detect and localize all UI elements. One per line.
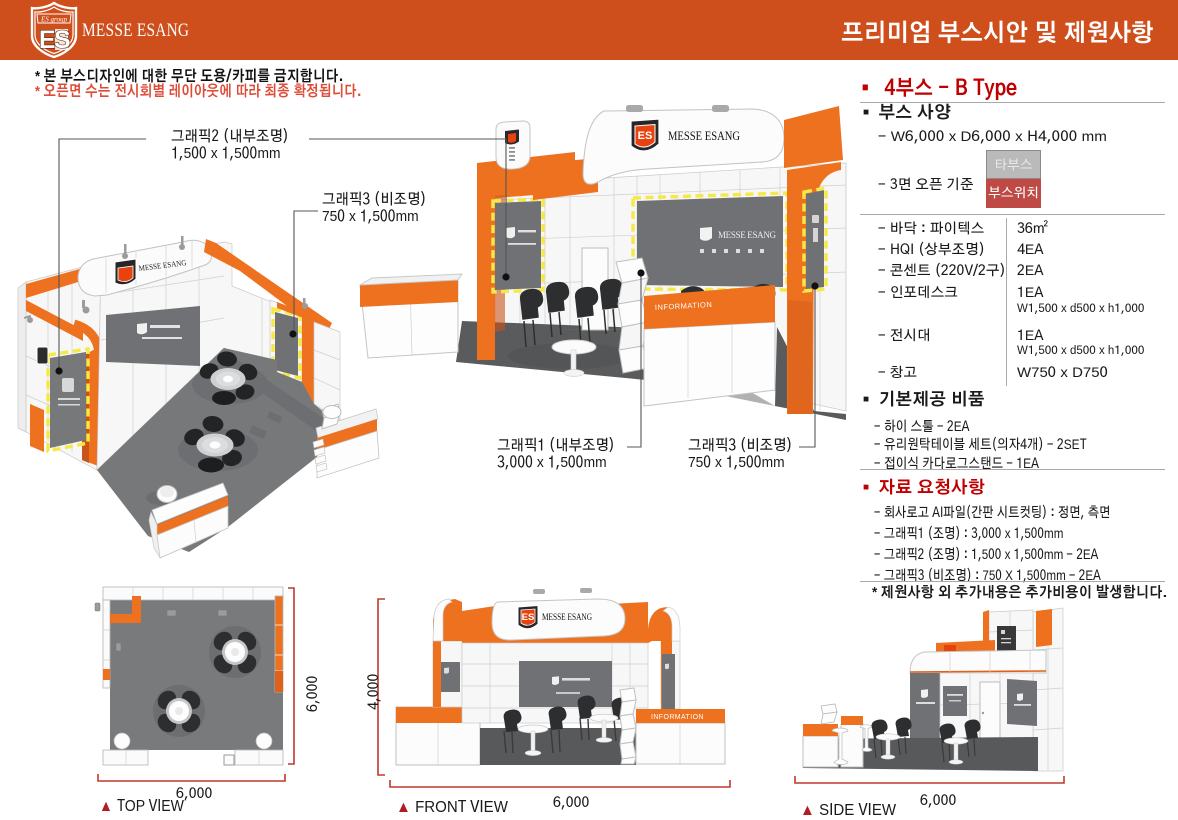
svg-text:MESSE ESANG: MESSE ESANG <box>542 613 592 623</box>
svg-text:ES: ES <box>522 612 535 623</box>
svg-text:MESSE ESANG: MESSE ESANG <box>718 230 777 240</box>
svg-text:MESSE ESANG: MESSE ESANG <box>668 129 740 143</box>
svg-text:INFORMATION: INFORMATION <box>651 714 704 721</box>
svg-text:ES: ES <box>638 130 653 142</box>
